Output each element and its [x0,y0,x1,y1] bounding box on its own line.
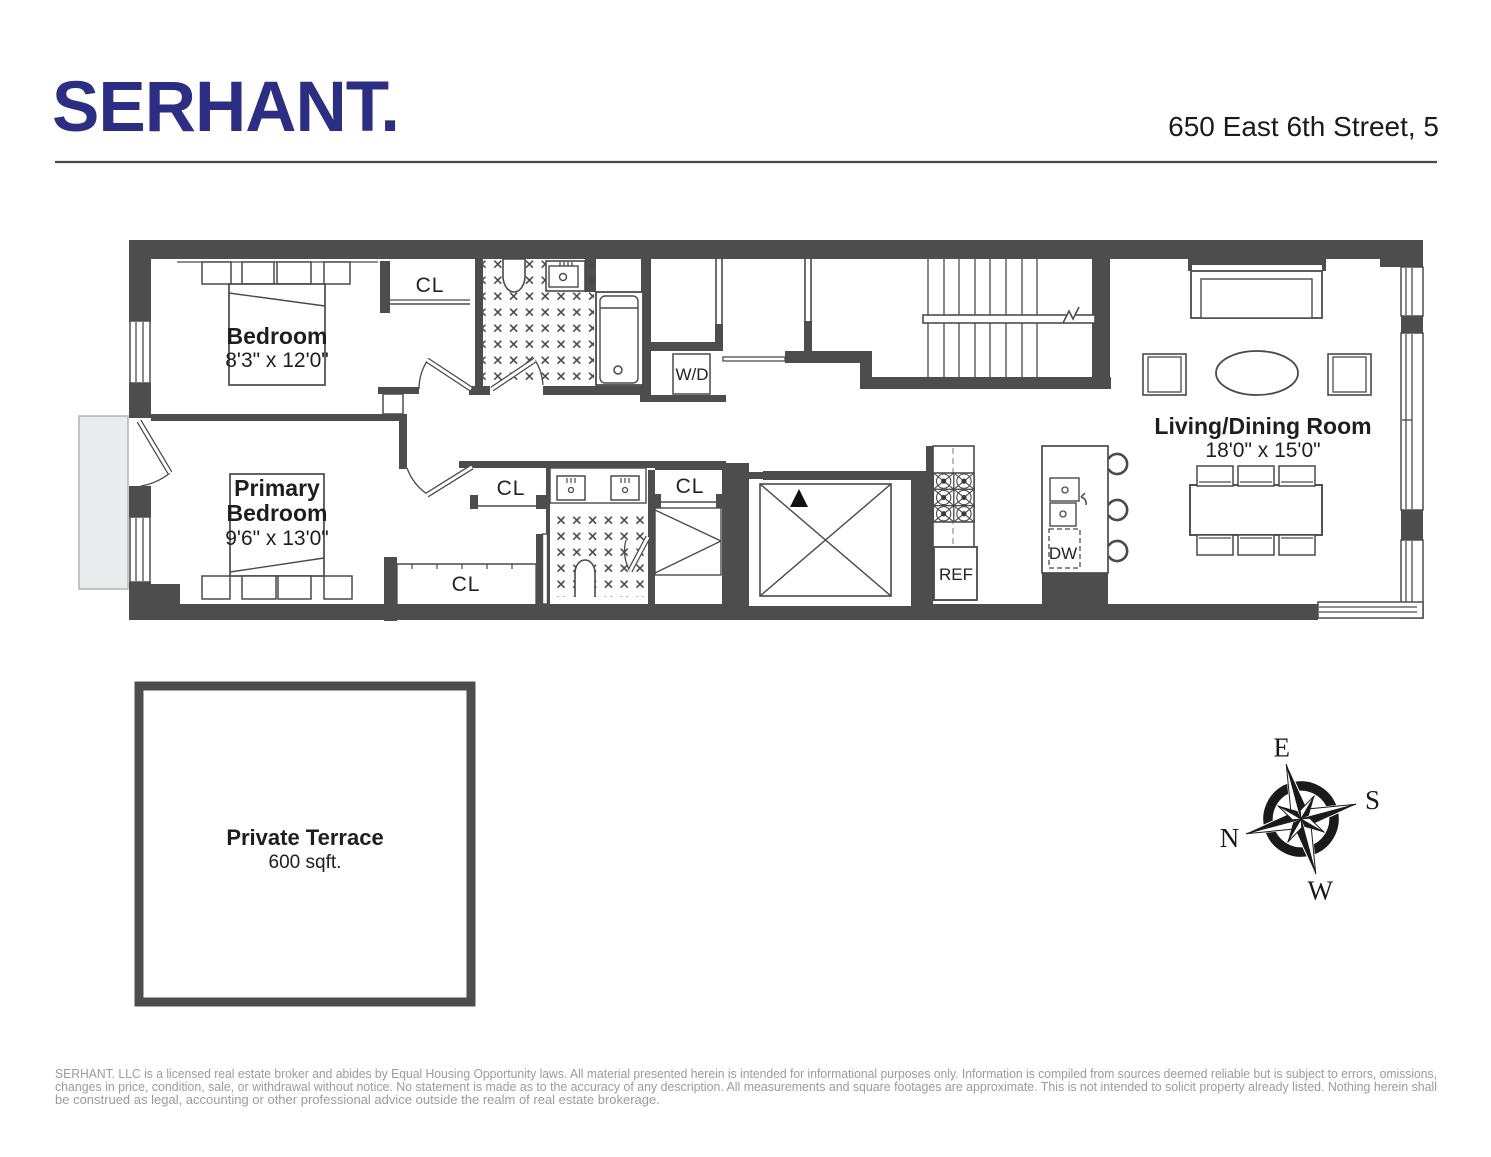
svg-text:W/D: W/D [675,365,708,384]
svg-text:SERHANT.: SERHANT. [52,68,399,147]
svg-text:DW: DW [1049,544,1077,563]
svg-text:Living/Dining Room: Living/Dining Room [1154,413,1371,439]
svg-text:S: S [1365,785,1380,815]
svg-text:8'3" x 12'0": 8'3" x 12'0" [225,349,329,372]
svg-text:650 East 6th Street, 5: 650 East 6th Street, 5 [1168,111,1439,142]
svg-text:CL: CL [497,477,526,500]
svg-text:be construed as legal, account: be construed as legal, accounting or oth… [55,1092,660,1107]
svg-text:Bedroom: Bedroom [227,323,328,349]
svg-text:CL: CL [452,573,481,596]
svg-text:600 sqft.: 600 sqft. [269,852,342,873]
svg-text:REF: REF [939,565,973,584]
svg-text:E: E [1274,733,1291,763]
svg-text:CL: CL [676,475,705,498]
svg-text:9'6" x 13'0": 9'6" x 13'0" [225,527,329,550]
svg-text:Primary: Primary [234,475,320,501]
svg-text:CL: CL [416,274,445,297]
svg-text:18'0" x 15'0": 18'0" x 15'0" [1205,439,1320,462]
svg-text:N: N [1220,823,1240,853]
svg-text:Bedroom: Bedroom [227,500,328,526]
svg-text:Private Terrace: Private Terrace [226,825,383,850]
svg-text:W: W [1307,876,1333,906]
